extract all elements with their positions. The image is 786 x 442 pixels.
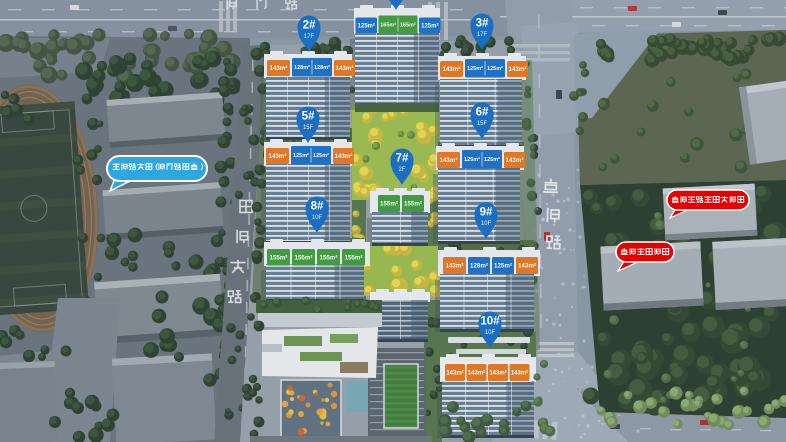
svg-text:17F: 17F (304, 34, 315, 40)
svg-text:10F: 10F (481, 221, 492, 227)
svg-text:15F: 15F (477, 121, 488, 127)
svg-text:3#: 3# (476, 18, 489, 30)
svg-text:10F: 10F (312, 215, 323, 221)
svg-text:9#: 9# (480, 207, 493, 219)
svg-text:15F: 15F (303, 125, 314, 131)
svg-text:17F: 17F (477, 32, 488, 38)
svg-text:8#: 8# (311, 201, 324, 213)
svg-text:2#: 2# (303, 20, 316, 32)
svg-text:5#: 5# (302, 111, 315, 123)
svg-text:6#: 6# (476, 107, 489, 119)
svg-text:2F: 2F (398, 167, 405, 173)
svg-text:10#: 10# (480, 316, 500, 328)
svg-text:7#: 7# (396, 153, 409, 165)
svg-text:10F: 10F (485, 330, 496, 336)
